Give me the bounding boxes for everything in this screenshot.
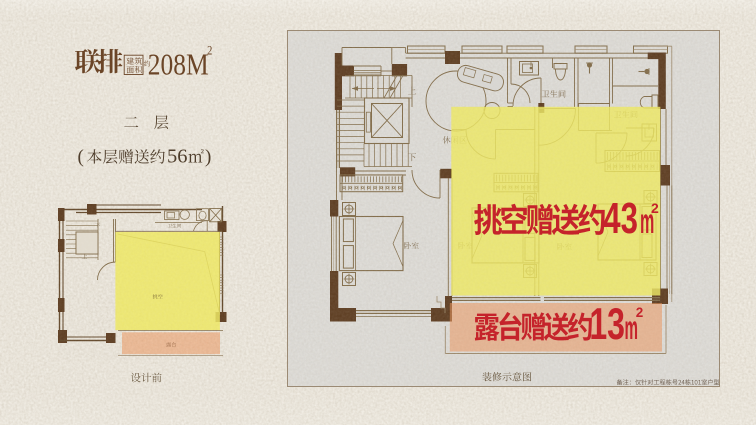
svg-text:56: 56 bbox=[167, 146, 188, 168]
svg-text:2: 2 bbox=[651, 200, 659, 216]
svg-text:(: ( bbox=[78, 147, 84, 168]
svg-text:2: 2 bbox=[207, 45, 212, 58]
svg-text:208M: 208M bbox=[148, 48, 209, 82]
svg-text:2: 2 bbox=[636, 305, 644, 320]
svg-text:43: 43 bbox=[603, 194, 638, 242]
svg-text:): ) bbox=[205, 147, 211, 168]
svg-text:13: 13 bbox=[589, 300, 625, 349]
